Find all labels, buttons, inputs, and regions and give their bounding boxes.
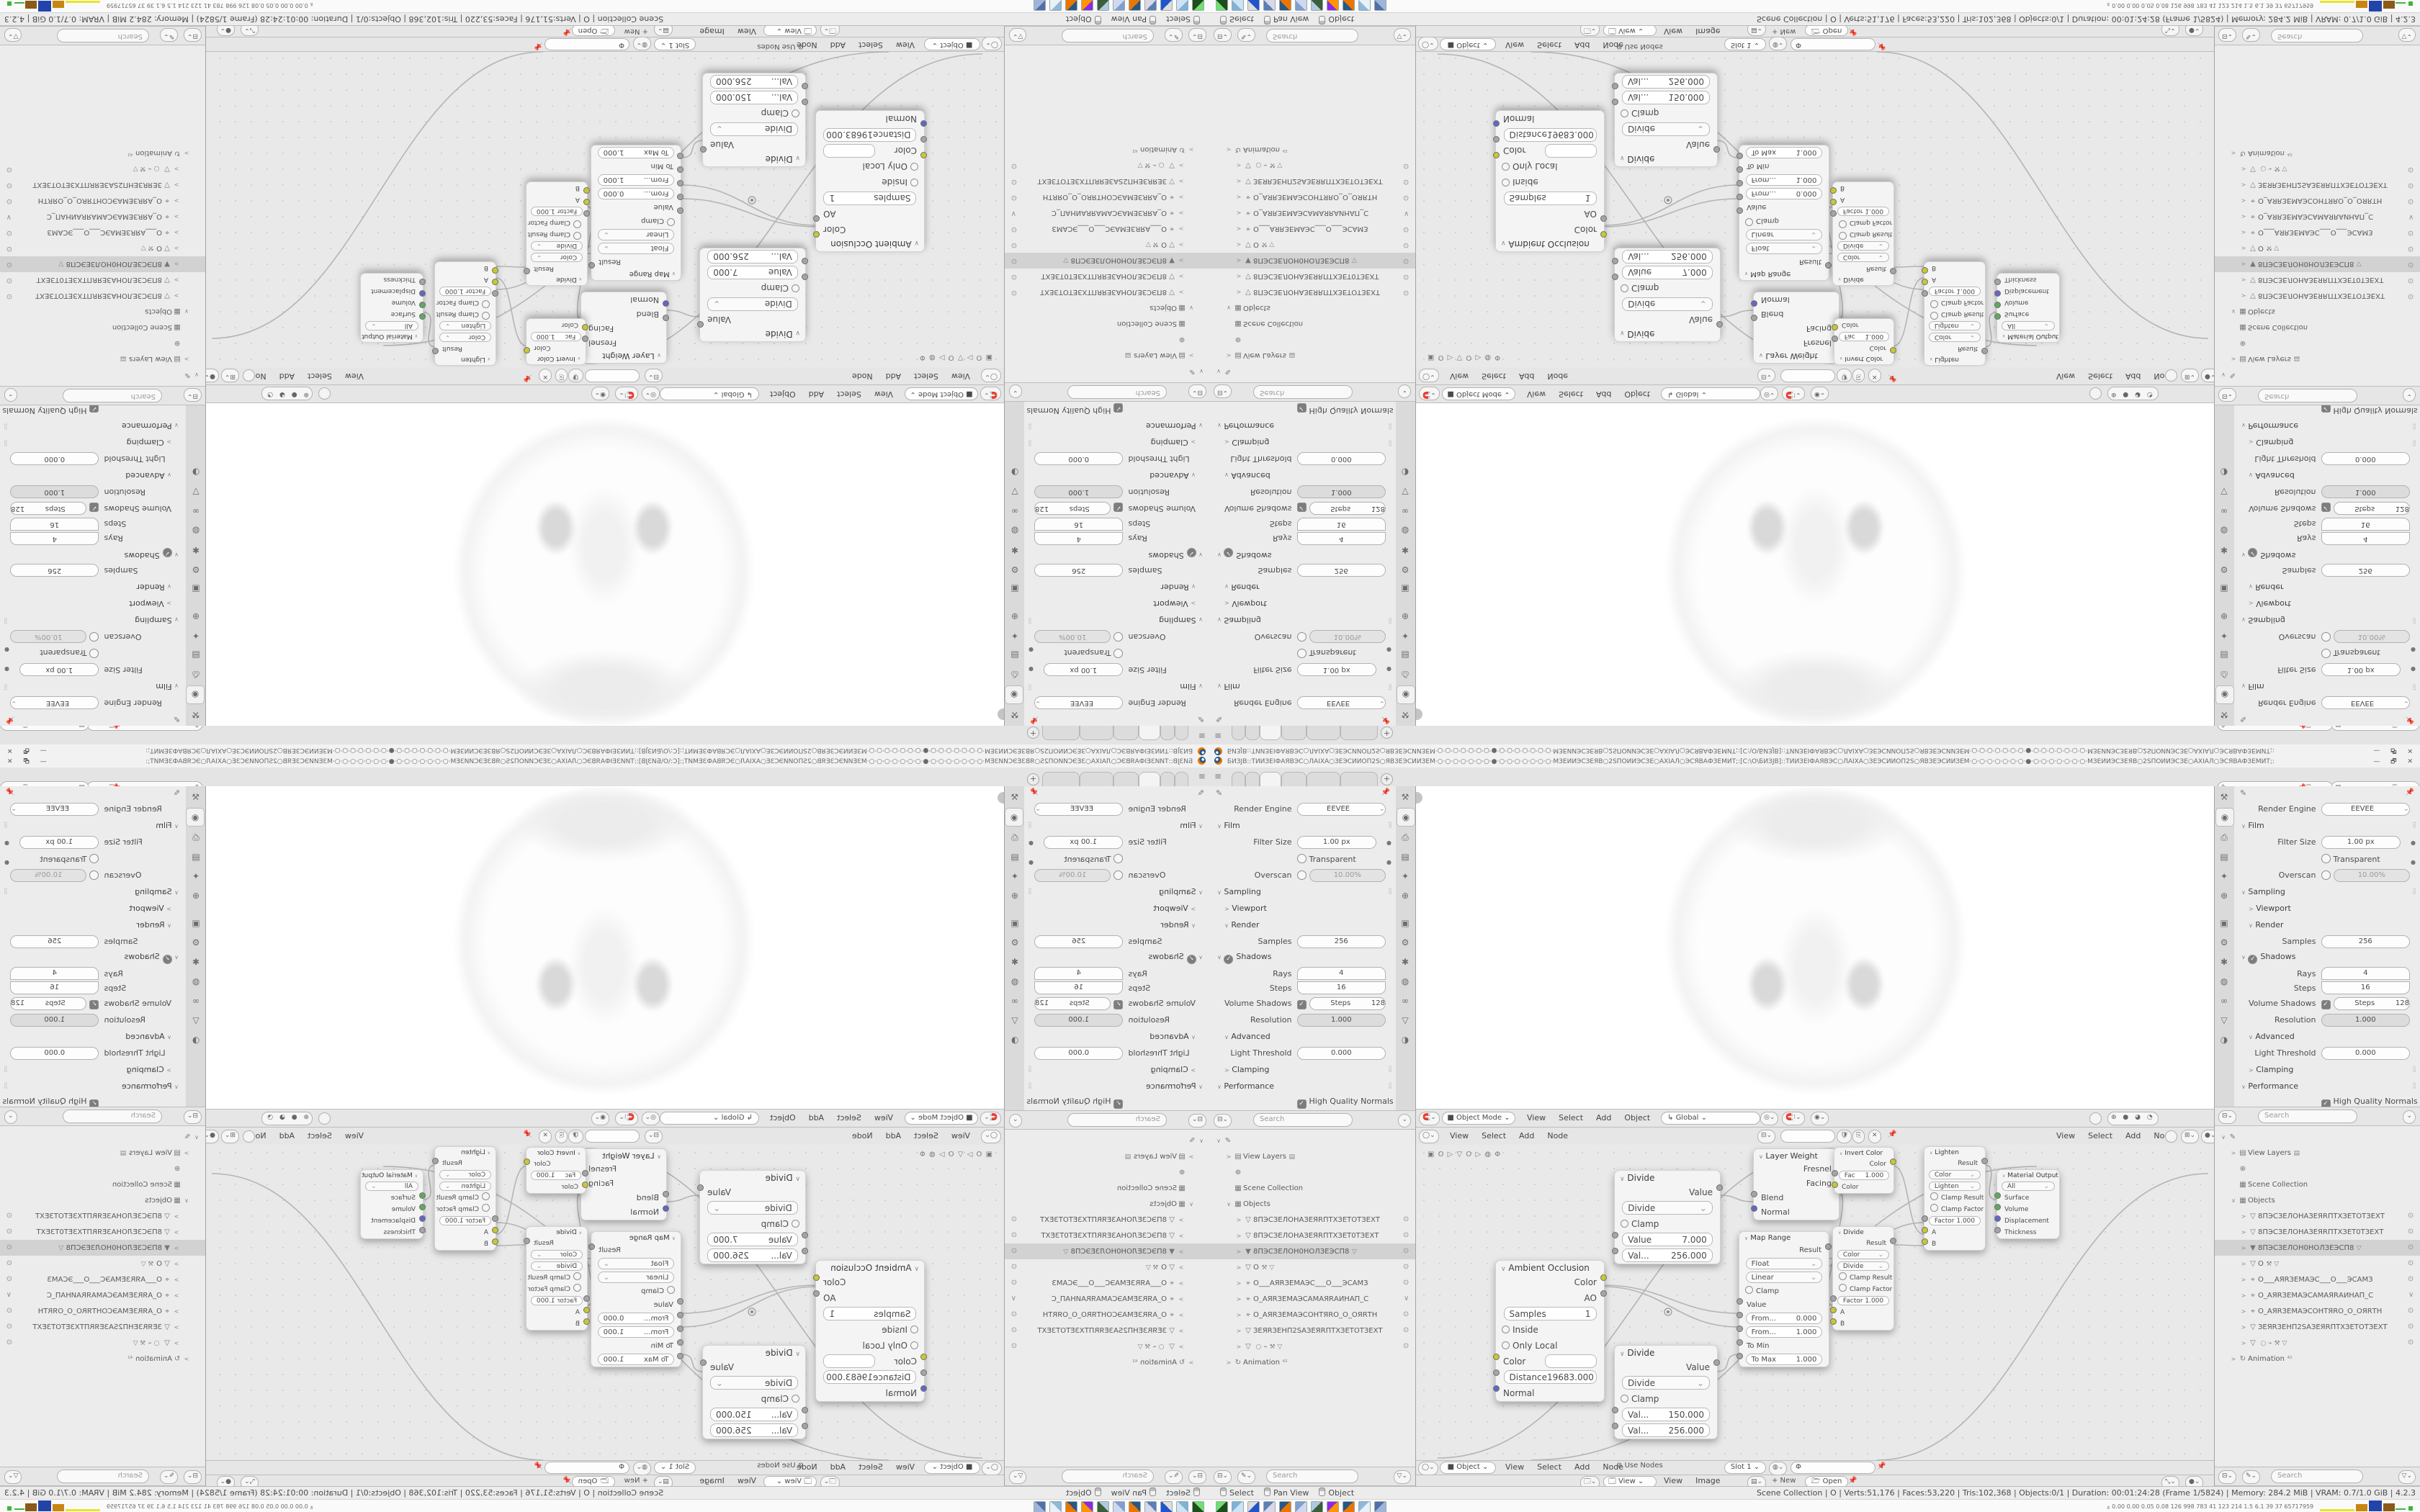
data-tab-icon[interactable]: ▽ bbox=[187, 1012, 205, 1029]
input-socket[interactable] bbox=[582, 1182, 588, 1188]
steps-field[interactable]: Steps 128 bbox=[2334, 997, 2410, 1010]
input-socket[interactable] bbox=[1493, 152, 1500, 158]
subsection-header[interactable]: ∨ Advanced bbox=[1149, 1032, 1210, 1041]
node-title[interactable]: ∨ Map Range bbox=[591, 1232, 681, 1243]
outliner-row[interactable]: ⊕ bbox=[0, 336, 205, 351]
visibility-toggles[interactable]: ⊙ ▣ ◘ bbox=[2408, 1319, 2420, 1335]
input-socket[interactable] bbox=[1493, 120, 1500, 127]
value-field[interactable]: 1.000 bbox=[10, 486, 99, 499]
visibility-toggles[interactable]: ⊙ ▣ ◘ bbox=[2408, 193, 2420, 209]
region-split-handle[interactable] bbox=[998, 708, 1004, 720]
node-select[interactable]: Divide⌄ bbox=[531, 1261, 583, 1271]
node-checkbox[interactable]: Only Local bbox=[863, 161, 924, 171]
tool-tab-icon[interactable]: ⚒ bbox=[2215, 788, 2233, 806]
outliner-row[interactable]: ⊕ bbox=[2215, 336, 2420, 351]
value-field[interactable]: 0.000 bbox=[1297, 1047, 1386, 1060]
input-socket[interactable] bbox=[1922, 1238, 1928, 1245]
add-workspace-button[interactable]: + bbox=[1381, 773, 1393, 786]
input-socket[interactable] bbox=[1493, 1369, 1500, 1376]
workspace-tab[interactable] bbox=[1139, 772, 1160, 787]
outliner-row[interactable]: >⌖О_АЯRЗЕМАЭСОНТЯRО_О_ОЯRТН⊙ ▣ ◘ bbox=[0, 193, 205, 209]
input-socket[interactable] bbox=[802, 1248, 808, 1254]
visibility-toggles[interactable]: ⊙ ▣ ◘ bbox=[2408, 288, 2420, 304]
outliner-row[interactable]: >▽ ○ ⌁ ⚒ ▽⊙ ▣ ◘ bbox=[0, 161, 205, 177]
node-select[interactable]: Float⌄ bbox=[1746, 243, 1823, 254]
visibility-toggles[interactable]: ⊙ ▣ ◘ bbox=[2408, 240, 2420, 256]
node-value-field[interactable]: Distance19683.000 bbox=[824, 128, 917, 142]
firefox-icon[interactable] bbox=[1327, 0, 1339, 11]
output-socket[interactable] bbox=[1713, 1359, 1720, 1366]
node-value-field[interactable] bbox=[1545, 1354, 1597, 1368]
constraints-tab-icon[interactable]: ∞ bbox=[1397, 992, 1414, 1009]
checkbox[interactable] bbox=[2321, 632, 2334, 642]
outliner-row[interactable]: ▦Scene Collection bbox=[2215, 320, 2420, 336]
value-field[interactable]: 4 bbox=[1297, 967, 1386, 980]
modifiers-tab-icon[interactable]: ⚙ bbox=[2215, 561, 2233, 578]
open-image-button[interactable]: 🗁 Open bbox=[1805, 24, 1848, 36]
modifiers-tab-icon[interactable]: ⚙ bbox=[1397, 561, 1414, 578]
input-socket[interactable] bbox=[582, 336, 588, 342]
node-value-field[interactable]: To Max1.000 bbox=[1746, 147, 1823, 158]
shaderfooter-add-menu[interactable]: Add bbox=[1574, 36, 1590, 53]
pin-icon[interactable]: 📌 bbox=[534, 42, 543, 50]
node-value-field[interactable]: Factor1.000 bbox=[439, 1216, 491, 1225]
material-name-field[interactable]: Φ bbox=[1791, 38, 1875, 50]
outliner-row[interactable]: >▽O ⚒ ▽⊙ ▣ ◘ bbox=[2215, 240, 2420, 256]
view-layer-tab-icon[interactable]: ▤ bbox=[1397, 647, 1414, 664]
value-field[interactable]: 1.00 px bbox=[1297, 664, 1377, 677]
material-name-field[interactable]: Φ bbox=[544, 38, 629, 50]
node-value-field[interactable]: Val...150.000 bbox=[710, 91, 798, 104]
outliner-row[interactable]: >▽ЗЕЯRЗЕНП2SАЗЕЯRПТХЗЕТОТЗЕХТ⊙ ▣ ◘ bbox=[0, 1319, 205, 1335]
workspace-tab[interactable] bbox=[1281, 725, 1307, 740]
physics-tab-icon[interactable]: ◍ bbox=[2215, 522, 2233, 539]
value-field[interactable]: 1.00 px bbox=[1297, 836, 1377, 849]
minimize-button[interactable]: — bbox=[2373, 747, 2384, 754]
shader-view-menu[interactable]: View bbox=[951, 367, 970, 384]
outliner-row[interactable]: ⊕ bbox=[1210, 1164, 1430, 1180]
subsection-header[interactable]: > Clamping bbox=[1210, 438, 1269, 447]
output-socket[interactable] bbox=[588, 1243, 595, 1250]
maximize-button[interactable]: 🗗 bbox=[19, 747, 29, 754]
mode-dropdown[interactable]: ■ Object Mode ⌄ bbox=[1442, 387, 1515, 400]
minimize-button[interactable]: — bbox=[36, 747, 47, 754]
new-image-button[interactable]: + New bbox=[624, 1477, 648, 1485]
browse-material-dropdown[interactable]: ◍⌄ bbox=[1769, 37, 1787, 50]
view-layer-tab-icon[interactable]: ▤ bbox=[1006, 848, 1023, 865]
shading-mode-buttons[interactable]: ⊕ ● ◕ ◔ bbox=[261, 1112, 313, 1125]
outliner-row[interactable]: ∨✎ bbox=[0, 1129, 205, 1145]
pin-icon[interactable]: 📌 bbox=[6, 788, 14, 796]
value-field[interactable]: 1.000 bbox=[1297, 486, 1386, 499]
visibility-toggles[interactable]: ⊙ ▣ ◘ bbox=[0, 1224, 12, 1240]
pin-icon[interactable]: 📌 bbox=[1877, 1462, 1886, 1470]
workspace-tab[interactable] bbox=[1080, 772, 1113, 787]
workspace-tab[interactable] bbox=[1232, 772, 1245, 787]
outliner-row[interactable]: >▽ЗЕЯRЗЕНП2SАЗЕЯRПТХЗЕТОТЗЕХТ⊙ ▣ ◘ bbox=[980, 174, 1210, 189]
browse-material-dropdown[interactable]: ⊟⌄ bbox=[1757, 1130, 1775, 1143]
input-socket[interactable] bbox=[920, 152, 927, 158]
unlink-button[interactable]: ✕ bbox=[539, 1130, 552, 1143]
node-select[interactable]: Divide⌄ bbox=[1622, 297, 1713, 311]
node-title[interactable]: ∨ Layer Weight bbox=[581, 1149, 666, 1162]
checkbox[interactable]: ✓ bbox=[86, 503, 99, 515]
value-field[interactable]: 1.000 bbox=[1034, 1014, 1123, 1027]
editor-type-dropdown[interactable]: ◯⌄ bbox=[981, 369, 1001, 382]
node-checkbox[interactable]: Clamp Factor bbox=[528, 1286, 587, 1293]
shader2-add-menu[interactable]: Add bbox=[279, 1128, 295, 1145]
visibility-toggles[interactable]: ⊙ ▣ ◘ bbox=[0, 193, 12, 209]
pin-icon[interactable]: 📌 bbox=[524, 374, 532, 382]
visibility-toggles[interactable]: ⊙ ▣ ◘ bbox=[0, 1303, 12, 1319]
display-mode-dropdown[interactable]: ⊟⌄ bbox=[2218, 1470, 2236, 1484]
pin-icon[interactable]: 📌 bbox=[1888, 1130, 1896, 1138]
node-title[interactable]: ∨ Ambient Occlusion bbox=[1496, 238, 1604, 251]
drag-grip-icon[interactable]: ⣿ bbox=[1388, 423, 1393, 430]
node-title[interactable]: ∨ Ambient Occlusion bbox=[1496, 1261, 1604, 1274]
section-header[interactable]: ∨ Film bbox=[156, 682, 186, 691]
outliner-search-input[interactable]: Search bbox=[2258, 389, 2357, 402]
node-select[interactable]: Linear⌄ bbox=[1746, 229, 1823, 240]
section-checkbox[interactable]: ✓ bbox=[1187, 548, 1196, 557]
input-socket[interactable] bbox=[1751, 1191, 1757, 1197]
input-socket[interactable] bbox=[492, 290, 498, 297]
node-value-field[interactable]: Distance19683.000 bbox=[1504, 1370, 1597, 1384]
node-select[interactable]: Color⌄ bbox=[531, 253, 583, 262]
section-header[interactable]: ∨ ✓Shadows bbox=[2234, 548, 2296, 560]
input-socket[interactable] bbox=[1612, 1248, 1618, 1254]
node-checkbox[interactable]: Clamp Factor bbox=[436, 1206, 496, 1213]
outliner-search-input[interactable]: Search bbox=[2271, 29, 2363, 42]
value-field[interactable]: 10.00% bbox=[1309, 869, 1386, 882]
workspace-tab[interactable] bbox=[1160, 772, 1175, 787]
filter-funnel-dropdown[interactable]: ▽⌄ bbox=[4, 1470, 22, 1484]
input-socket[interactable] bbox=[1922, 1215, 1928, 1222]
minimize-button[interactable]: — bbox=[36, 758, 47, 765]
particles-tab-icon[interactable]: ✱ bbox=[2215, 541, 2233, 559]
output-socket[interactable] bbox=[1825, 1243, 1832, 1250]
section-header[interactable]: ∨ Film bbox=[2234, 821, 2264, 830]
particles-tab-icon[interactable]: ✱ bbox=[1397, 953, 1414, 971]
properties-context-icon[interactable]: ✎ bbox=[1198, 714, 1204, 724]
section-header[interactable]: ∨ Sampling bbox=[1210, 887, 1261, 896]
drag-grip-icon[interactable]: ⣿ bbox=[1388, 888, 1393, 894]
value-field[interactable]: 0.000 bbox=[1034, 1047, 1123, 1060]
outliner-search-input[interactable]: Search bbox=[2258, 1110, 2357, 1123]
hamburger-menu-icon[interactable]: ≡ bbox=[1214, 772, 1226, 781]
shader2-select-menu[interactable]: Select bbox=[308, 1128, 332, 1145]
particles-tab-icon[interactable]: ✱ bbox=[187, 953, 205, 971]
drag-grip-icon[interactable]: ⣿ bbox=[1027, 423, 1032, 430]
outliner-row[interactable]: >⌖О___АЯRЗЕМАЭС___О___ЭСАМЗ⊙ ▣ ◘ bbox=[980, 221, 1210, 237]
area-divider[interactable] bbox=[205, 786, 206, 1486]
shader-add-menu[interactable]: Add bbox=[886, 367, 901, 384]
checkbox[interactable]: Transparent bbox=[2321, 854, 2380, 864]
node-value-field[interactable]: Value7.000 bbox=[1622, 266, 1713, 279]
node-value-field[interactable]: Val...150.000 bbox=[1622, 1408, 1710, 1421]
visibility-toggles[interactable]: ⊙ ▣ ◘ bbox=[0, 256, 12, 272]
properties-context-icon[interactable]: ✎ bbox=[1216, 788, 1222, 798]
outliner-row[interactable]: >▽ЗЕЯRЗЕНП2SАЗЕЯRПТХЗЕТОТЗЕХТ⊙ ▣ ◘ bbox=[2215, 177, 2420, 193]
physics-tab-icon[interactable]: ◍ bbox=[1006, 973, 1023, 990]
outliner-row[interactable]: >↻Animation ⁴² bbox=[990, 142, 1210, 158]
node-checkbox[interactable]: Clamp Result bbox=[528, 1274, 587, 1282]
visibility-toggles[interactable]: ∨ ▣ ◘ bbox=[0, 1287, 12, 1303]
overlay-toggle[interactable] bbox=[2165, 1130, 2177, 1143]
shading-mode-buttons[interactable]: ⊕ ● ◕ ◔ bbox=[261, 387, 313, 400]
terminal-icon[interactable] bbox=[1216, 1501, 1228, 1512]
firefox-icon[interactable] bbox=[1081, 0, 1093, 11]
drag-grip-icon[interactable]: ⣿ bbox=[3, 440, 8, 446]
shader-node-menu[interactable]: Node bbox=[852, 367, 873, 384]
outliner-row[interactable]: >⌖О_АЯRЗЕМАЭСОНТЯRО_О_ОЯRТН⊙ ▣ ◘ bbox=[980, 1307, 1210, 1323]
input-socket[interactable] bbox=[802, 1232, 808, 1238]
shader-view-menu[interactable]: View bbox=[1450, 1128, 1469, 1145]
value-field[interactable]: 16 bbox=[2321, 518, 2410, 531]
tool-tab-icon[interactable]: ⚒ bbox=[1397, 788, 1414, 806]
browse-material-dropdown[interactable]: ◍⌄ bbox=[633, 1462, 651, 1475]
browse-material-dropdown[interactable]: ◍⌄ bbox=[1769, 1462, 1787, 1475]
outliner-row[interactable]: >▽ ○ ⌁ ⚒ ▽⊙ ▣ ◘ bbox=[980, 1338, 1210, 1354]
shader2-view-menu[interactable]: View bbox=[345, 1128, 364, 1145]
input-socket[interactable] bbox=[1994, 279, 2001, 285]
outliner-row[interactable]: >▽8ПЭСЗЕЛОНАЗЕЯRПТХЗЕТ0ТЗЕХТ⊙ ▣ ◘ bbox=[1210, 1228, 1440, 1243]
scene-tab-icon[interactable]: ✦ bbox=[1397, 627, 1414, 644]
object-tab-icon[interactable]: ▣ bbox=[187, 580, 205, 598]
input-socket[interactable] bbox=[677, 180, 684, 186]
viewport-object-menu[interactable]: Object bbox=[770, 1110, 796, 1127]
pin-icon[interactable]: 📌 bbox=[1848, 27, 1857, 35]
input-socket[interactable] bbox=[677, 1312, 684, 1318]
copy-material-button[interactable]: ⎘ bbox=[555, 369, 568, 382]
outliner-row[interactable]: >⌖О_АЯRЗЕМАЭСОНТЯRО_О_ОЯRТН⊙ ▣ ◘ bbox=[1210, 189, 1440, 205]
viewport-add-menu[interactable]: Add bbox=[809, 1110, 824, 1127]
orientation-dropdown[interactable]: ↳ Global ⌄ bbox=[660, 387, 759, 400]
scene-tab-icon[interactable]: ✦ bbox=[187, 627, 205, 644]
subsection-header[interactable]: > Viewport bbox=[2234, 904, 2291, 913]
copy-material-button[interactable]: ⎘ bbox=[555, 1130, 568, 1143]
section-checkbox[interactable]: ✓ bbox=[163, 548, 172, 557]
shader-node[interactable]: ∨ Ambient OcclusionColorAOSamples1Inside… bbox=[1495, 110, 1605, 252]
outliner-row[interactable]: >↻Animation ⁴² bbox=[990, 1354, 1210, 1370]
filter-funnel-dropdown[interactable]: ▽⌄ bbox=[1009, 1470, 1026, 1484]
outliner-row[interactable]: >▼8ПЭСЗЕЛОН0НОЛЗЕЭСП8 ▽⊙ ▣ ◘ bbox=[980, 253, 1210, 269]
calculator-icon[interactable] bbox=[1144, 1501, 1157, 1512]
output-socket[interactable] bbox=[1825, 262, 1832, 269]
outliner-row[interactable]: >▽O ⚒ ▽⊙ ▣ ◘ bbox=[980, 237, 1210, 253]
output-socket[interactable] bbox=[524, 347, 530, 354]
scene-tab-icon[interactable]: ✦ bbox=[1006, 868, 1023, 885]
checkbox[interactable]: ✓High Quality Normals bbox=[1297, 403, 1394, 415]
value-field[interactable]: 1.00 px bbox=[2321, 664, 2401, 677]
output-socket[interactable] bbox=[697, 1184, 704, 1191]
drag-grip-icon[interactable]: ⣿ bbox=[3, 822, 8, 828]
node-select[interactable]: Float⌄ bbox=[598, 243, 675, 254]
add-workspace-button[interactable]: + bbox=[1027, 726, 1039, 739]
viewport-3d[interactable] bbox=[1416, 786, 2214, 1109]
editor-type-dropdown[interactable]: ◯⌄ bbox=[1419, 369, 1439, 382]
node-checkbox[interactable]: Only Local bbox=[1496, 161, 1557, 171]
gizmo-dropdown[interactable]: 🧲⌄ bbox=[980, 387, 1001, 400]
shader-node[interactable]: ∨ DivideValueDivide⌄ClampVal...150.000Va… bbox=[702, 1345, 806, 1439]
input-socket[interactable] bbox=[419, 290, 426, 297]
workspace-tab[interactable] bbox=[1139, 725, 1160, 740]
output-tab-icon[interactable]: ⎙ bbox=[1006, 829, 1023, 846]
node-value-field[interactable] bbox=[1545, 144, 1597, 158]
outliner-search-input[interactable]: Search bbox=[1062, 1470, 1154, 1483]
outliner-row[interactable]: >⌖О___АЯRЗЕМАЭС___О___ЭСАМЗ⊙ ▣ ◘ bbox=[1210, 221, 1440, 237]
fake-user-shield-icon[interactable]: 🛡 bbox=[568, 369, 583, 382]
drag-grip-icon[interactable]: ⣿ bbox=[1388, 440, 1393, 446]
input-socket[interactable] bbox=[802, 99, 808, 105]
snap-toggle[interactable]: 🧲⁝⌄ bbox=[615, 1112, 638, 1125]
firefox-icon[interactable] bbox=[1327, 1501, 1339, 1512]
outliner-row[interactable]: >⌖О_АЯRЗЕМАЭСАМАЯRАИНАП_С∨ ▣ ◘ bbox=[2215, 209, 2420, 225]
node-value-field[interactable]: From...1.000 bbox=[598, 174, 675, 186]
input-socket[interactable] bbox=[677, 1339, 684, 1346]
pivot-dropdown[interactable]: ◎⌄ bbox=[642, 387, 660, 400]
node-select[interactable]: Divide⌄ bbox=[707, 297, 798, 311]
new-image-button[interactable]: + New bbox=[1772, 1477, 1796, 1485]
shaderfooter-add-menu[interactable]: Add bbox=[1574, 1459, 1590, 1476]
pivot-dropdown[interactable]: ◎⌄ bbox=[1760, 387, 1778, 400]
tool-dropdown[interactable]: ✎⌄ bbox=[160, 1470, 178, 1484]
overlay-toggle[interactable] bbox=[2165, 369, 2177, 382]
node-value-field[interactable]: From...0.000 bbox=[598, 188, 675, 199]
outliner-row[interactable]: ⊕ bbox=[990, 1164, 1210, 1180]
subsection-header[interactable]: ∨ Render bbox=[2234, 582, 2284, 592]
tool-dropdown[interactable]: ✎⌄ bbox=[1165, 28, 1183, 42]
editor-type-dropdown[interactable]: ◯⌄ bbox=[981, 1130, 1001, 1143]
object-tab-icon[interactable]: ▣ bbox=[2215, 914, 2233, 932]
drag-grip-icon[interactable]: ⣿ bbox=[1027, 440, 1032, 446]
shader-node[interactable]: ∨ DivideResultColor⌄Divide⌄Clamp ResultC… bbox=[526, 181, 588, 286]
section-header[interactable]: ∨ Sampling bbox=[135, 887, 186, 896]
node-value-field[interactable]: Fac1.000 bbox=[1839, 1171, 1890, 1180]
outliner-row[interactable]: ▦Scene Collection bbox=[2215, 1176, 2420, 1192]
visibility-toggles[interactable]: ⊙ ▣ ◘ bbox=[0, 1256, 12, 1272]
terminal-icon[interactable] bbox=[1192, 1501, 1204, 1512]
pivot-dropdown[interactable]: ◎⌄ bbox=[642, 1112, 660, 1125]
outliner-row[interactable]: >↻Animation ⁴² bbox=[1210, 1354, 1430, 1370]
outliner-row[interactable]: >▽ ○ ⌁ ⚒ ▽⊙ ▣ ◘ bbox=[1210, 1338, 1440, 1354]
input-socket[interactable] bbox=[1751, 1205, 1757, 1212]
input-socket[interactable] bbox=[1736, 153, 1743, 159]
value-field[interactable]: 256 bbox=[2321, 564, 2410, 577]
workspace-tab[interactable] bbox=[1042, 772, 1080, 787]
animate-dot-icon[interactable]: ● bbox=[0, 837, 9, 847]
shader2-select-menu[interactable]: Select bbox=[2088, 367, 2112, 384]
area-divider[interactable] bbox=[1415, 786, 1416, 1486]
section-header[interactable]: ∨ Film bbox=[2234, 682, 2264, 691]
checkbox[interactable]: ✓ bbox=[1297, 503, 1309, 515]
slot-dropdown[interactable]: Slot 1 ⌄ bbox=[654, 38, 696, 50]
slot-dropdown[interactable]: Slot 1 ⌄ bbox=[1724, 1462, 1766, 1474]
render-tab-icon[interactable]: ◉ bbox=[1397, 808, 1415, 827]
blender-icon[interactable] bbox=[1279, 1501, 1291, 1512]
output-socket[interactable] bbox=[813, 215, 820, 222]
node-select[interactable]: All⌄ bbox=[2002, 1182, 2055, 1191]
shader2-view-menu[interactable]: View bbox=[2056, 1128, 2075, 1145]
node-value-field[interactable]: Factor1.000 bbox=[1837, 1296, 1889, 1305]
node-value-field[interactable]: From...0.000 bbox=[1746, 188, 1823, 199]
render-tab-icon[interactable]: ◉ bbox=[186, 808, 205, 827]
render-engine-dropdown[interactable]: EEVEE ⌄ bbox=[1297, 697, 1386, 710]
material-tab-icon[interactable]: ◑ bbox=[1397, 1031, 1414, 1048]
shader-node[interactable]: ∨ DivideValueDivide⌄ClampVal...150.000Va… bbox=[1614, 73, 1718, 167]
blender2-icon[interactable] bbox=[1065, 0, 1077, 11]
pin-icon[interactable]: 📌 bbox=[1030, 788, 1039, 796]
render-engine-dropdown[interactable]: EEVEE ⌄ bbox=[1297, 803, 1386, 816]
maximize-button[interactable]: 🗗 bbox=[2390, 747, 2401, 754]
save-icon[interactable] bbox=[1160, 0, 1173, 11]
outliner-row[interactable]: ⊕ bbox=[1210, 332, 1430, 348]
node-checkbox[interactable]: Only Local bbox=[1496, 1341, 1557, 1351]
node-select[interactable]: Lighten⌄ bbox=[439, 1182, 491, 1191]
node-value-field[interactable]: Value7.000 bbox=[1622, 1233, 1713, 1246]
material-name-field[interactable] bbox=[585, 369, 640, 382]
shader-type-dropdown[interactable]: ■ Object ⌄ bbox=[924, 1462, 980, 1474]
scene-tab-icon[interactable]: ✦ bbox=[2215, 627, 2233, 644]
constraints-tab-icon[interactable]: ∞ bbox=[1006, 992, 1023, 1009]
animate-dot-icon[interactable]: ● bbox=[1024, 665, 1034, 675]
view-mode-dropdown[interactable]: 🗔 View ⌄ bbox=[1603, 24, 1657, 36]
proportional-edit-toggle[interactable]: ◉⌄ bbox=[591, 1112, 609, 1125]
value-field[interactable]: 1.00 px bbox=[1044, 664, 1124, 677]
fake-user-shield-icon[interactable]: 🛡 bbox=[1837, 369, 1852, 382]
overlay-toggle[interactable] bbox=[243, 369, 255, 382]
workspace-tab[interactable] bbox=[1160, 725, 1175, 740]
drag-grip-icon[interactable]: ⣿ bbox=[2412, 822, 2417, 828]
node-title[interactable]: ∨ Invert Color bbox=[526, 354, 586, 364]
particles-tab-icon[interactable]: ✱ bbox=[1397, 541, 1414, 559]
calculator2-icon[interactable] bbox=[1295, 0, 1307, 11]
input-socket[interactable] bbox=[802, 274, 808, 280]
view-layer-tab-icon[interactable]: ▤ bbox=[2215, 848, 2233, 865]
browse-material-dropdown[interactable]: ⊟⌄ bbox=[1757, 369, 1775, 382]
material-tab-icon[interactable]: ◑ bbox=[1397, 464, 1414, 481]
close-button[interactable]: ✕ bbox=[2407, 758, 2417, 765]
drag-grip-icon[interactable]: ⣿ bbox=[3, 423, 8, 430]
tool-tab-icon[interactable]: ⚒ bbox=[187, 788, 205, 806]
output-socket[interactable] bbox=[813, 231, 820, 238]
physics-tab-icon[interactable]: ◍ bbox=[2215, 973, 2233, 990]
region-split-handle[interactable] bbox=[1416, 792, 1422, 804]
output-socket[interactable] bbox=[1600, 215, 1607, 222]
subsection-header[interactable]: > Clamping bbox=[127, 438, 186, 447]
node-title[interactable]: ∨ Ambient Occlusion bbox=[816, 238, 924, 251]
outliner-row[interactable]: >▽ЗЕЯRЗЕНП2SАЗЕЯRПТХЗЕТОТЗЕХТ⊙ ▣ ◘ bbox=[1210, 174, 1440, 189]
properties-context-icon[interactable]: ✎ bbox=[174, 788, 180, 798]
node-select[interactable]: Lighten⌄ bbox=[1929, 1182, 1981, 1191]
outliner-search-input[interactable]: Search bbox=[1067, 385, 1167, 399]
properties-context-icon[interactable]: ✎ bbox=[2240, 714, 2246, 724]
view-layer-tab-icon[interactable]: ▤ bbox=[2215, 647, 2233, 664]
snap-node-toggle[interactable]: ⊞⌄ bbox=[221, 369, 239, 382]
physics-tab-icon[interactable]: ◍ bbox=[1397, 522, 1414, 539]
material-tab-icon[interactable]: ◑ bbox=[2215, 464, 2233, 481]
material-tab-icon[interactable]: ◑ bbox=[187, 464, 205, 481]
object-tab-icon[interactable]: ▣ bbox=[187, 914, 205, 932]
viewport-view-menu[interactable]: View bbox=[874, 385, 893, 402]
outliner-row[interactable]: >▼8ПЭСЗЕЛОН0НОЛЗЕЭСП8 ▽⊙ ▣ ◘ bbox=[980, 1243, 1210, 1259]
drag-grip-icon[interactable]: ⣿ bbox=[3, 1066, 8, 1072]
section-header[interactable]: ∨ Sampling bbox=[1210, 616, 1261, 625]
filter-dropdown[interactable]: ⌄ bbox=[1398, 384, 1411, 398]
visibility-toggles[interactable]: ∨ ▣ ◘ bbox=[0, 209, 12, 225]
subsection-header[interactable]: ∨ Advanced bbox=[2234, 471, 2295, 480]
shaderfooter-select-menu[interactable]: Select bbox=[1537, 1459, 1561, 1476]
